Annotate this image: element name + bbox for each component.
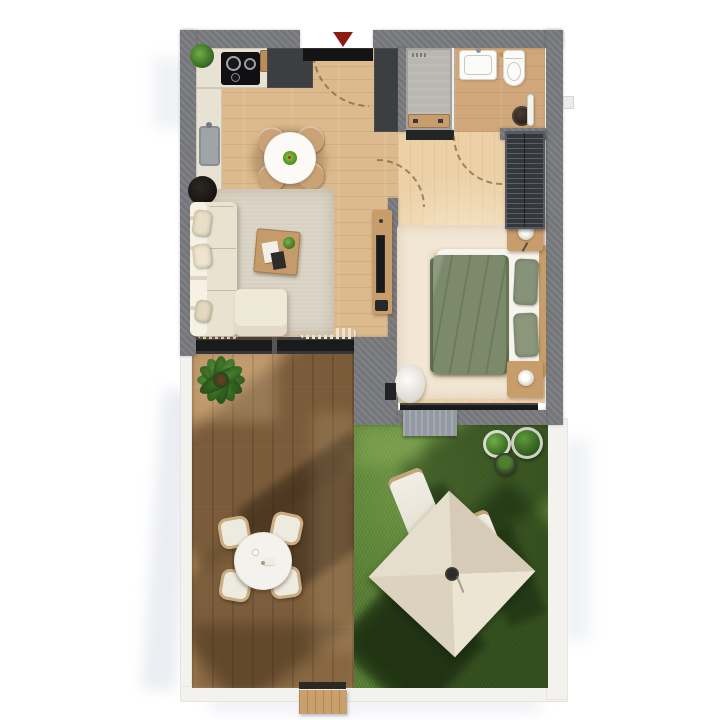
centerpiece-berry xyxy=(288,156,291,159)
bed-headboard xyxy=(539,245,546,377)
toilet-tank-line xyxy=(505,58,523,59)
washbasin xyxy=(459,50,497,80)
parasol-rope xyxy=(456,576,465,593)
sofa-seat-cushions xyxy=(207,206,236,332)
sofa-pillow xyxy=(192,243,212,269)
burner xyxy=(244,58,256,70)
wall-bathroom-left xyxy=(398,48,406,132)
toilet-seat xyxy=(507,62,521,81)
bed-pillow xyxy=(513,258,539,305)
bench-handle xyxy=(438,119,443,123)
faucet xyxy=(206,122,212,128)
page: { "scene": { "type": "floor-plan-3d-rend… xyxy=(0,0,720,720)
coffee-table-plant xyxy=(283,237,295,249)
shower-glass xyxy=(452,48,454,130)
burner xyxy=(226,56,241,71)
door-frame-post xyxy=(272,337,277,354)
terrace-plant xyxy=(194,353,248,407)
entrance-doormat xyxy=(303,48,373,61)
tv-knob xyxy=(379,219,383,223)
soundbar xyxy=(375,300,388,311)
outdoor-table xyxy=(234,532,292,590)
sliding-glass-door xyxy=(196,337,354,354)
deck-threshold xyxy=(299,682,346,689)
wardrobe-divider xyxy=(524,133,525,227)
entry-closet xyxy=(374,48,398,132)
basin-faucet xyxy=(476,48,481,53)
terrace-curb-left xyxy=(180,352,192,700)
deck-highlight xyxy=(312,412,354,652)
table-napkin xyxy=(264,558,274,565)
terrace-deck xyxy=(192,352,354,688)
tv-screen xyxy=(376,235,385,293)
terrace-curb-right xyxy=(546,418,568,700)
kitchen-sink xyxy=(199,126,220,166)
bed-pillow xyxy=(513,312,539,357)
bedroom-doorstep xyxy=(403,410,457,436)
potted-plant xyxy=(511,427,543,459)
potted-plant xyxy=(494,453,516,475)
toilet xyxy=(503,50,525,86)
table-centerpiece-plant xyxy=(283,151,297,165)
dining-table xyxy=(264,132,316,184)
wardrobe-louvered xyxy=(505,131,545,229)
light-switch xyxy=(563,96,574,109)
wall-right xyxy=(546,30,563,425)
terrace-curb-bottom xyxy=(180,686,568,702)
towel-rail xyxy=(527,94,534,126)
floor-cushion xyxy=(188,176,217,205)
wall-terrace-corner xyxy=(354,337,398,425)
bedroom-window xyxy=(400,403,538,410)
burner xyxy=(231,73,240,82)
table-cup xyxy=(252,549,259,556)
shower-drain xyxy=(412,53,426,57)
nightstand-lamp xyxy=(518,370,534,386)
garden-lawn xyxy=(354,424,548,688)
cooktop xyxy=(221,52,260,85)
floor-plan-canvas xyxy=(0,0,720,720)
coffee-table-book xyxy=(271,251,287,270)
plant-center xyxy=(213,372,229,388)
shower-bench xyxy=(408,114,450,128)
entrance-marker-icon xyxy=(333,32,353,47)
bedroom-planter xyxy=(395,365,425,403)
bedroom-dark-box xyxy=(385,383,396,400)
plank-step xyxy=(299,690,347,714)
wall-top-right xyxy=(373,30,563,48)
table-center-dot xyxy=(261,561,265,565)
kitchen-plant xyxy=(190,44,214,68)
basin-bowl xyxy=(464,55,492,75)
bed-duvet xyxy=(433,255,509,374)
sofa-chaise xyxy=(235,289,287,336)
bench-handle xyxy=(413,119,418,123)
